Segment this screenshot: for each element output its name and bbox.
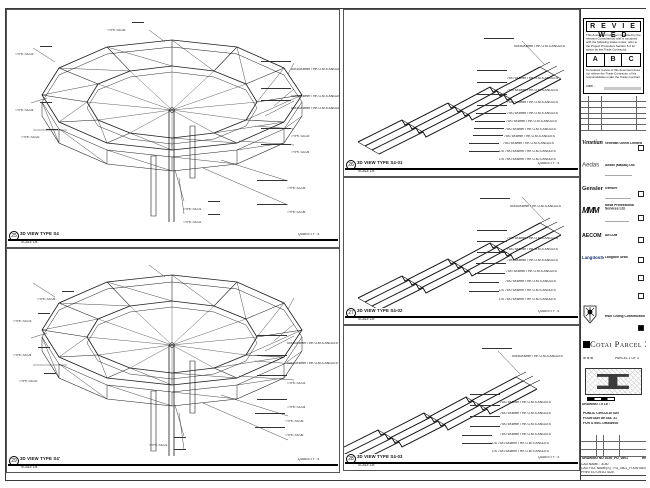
callout-label: 75X75X6mm THK G.M.S ANGLES	[507, 68, 509, 72]
callout-label: TYPE S4-06	[285, 425, 287, 429]
consultant-row-venetian: Venetian Venetian Orient Limited	[581, 131, 646, 154]
highlighted-parcel-shape	[597, 374, 629, 390]
consultant-row-aecom: AECOM AECOM	[581, 223, 646, 246]
drawing-sheet: TYPE S4-03TYPE S4-05TYPE S4-04TYPE S4-02…	[5, 8, 646, 481]
review-checkbox	[638, 293, 644, 299]
view-number-bubble: 26	[346, 160, 356, 170]
revision-table-row: NO. DATE DESCRIPTION BY	[581, 96, 646, 132]
callout-label: 75X75X6mm THK G.M.S ANGLES	[500, 403, 502, 407]
cad-line: CAD FILE NAME(S) : PD_0501_FOUNTAIN_31.D…	[581, 467, 617, 469]
address-placeholder	[605, 221, 629, 222]
view-scale: SCALE 1/8	[21, 241, 37, 244]
title-underline	[345, 316, 578, 318]
callout-label: TYPE S4-01	[183, 199, 208, 203]
status-option-b: B	[605, 54, 623, 66]
view-scale: SCALE 1/8	[21, 466, 37, 469]
callout-label: 75X75X6mm THK G.M.S ANGLES	[506, 261, 508, 265]
panel-3d-view-s4-02: 50X50X6mm THK G.M.S ANGLES75X75X6mm THK …	[343, 177, 580, 325]
cad-line: PRINTED ON A1 SIZE	[581, 471, 617, 473]
banner-ornament-icon	[583, 341, 590, 348]
drawing-title-line: FOUNTAIN DETAIL 31	[583, 417, 617, 420]
callout-label: 75X75X6mm THK G.M.S ANGLES	[500, 424, 502, 428]
keyplan-note: PARCEL 1 OF 3	[615, 357, 639, 360]
reviewed-paragraph-2: Consultant review of this document does …	[586, 69, 641, 76]
panel-3d-view-s4-alt: TYPE S4-05TYPE S4-03TYPE S4-04TYPE S4-02…	[6, 248, 340, 473]
drawing-meta-table: DESIGNED - DWG 2342 DRAWN - DATE 14/04/2…	[581, 435, 646, 457]
callout-label: 50X50X6mm THK G.M.S ANGLES	[291, 59, 293, 63]
contractor-row: Hsin Chong Construction (Macau) Co. Ltd.	[581, 301, 646, 334]
date-fill-line	[604, 87, 641, 90]
keyplan-row	[581, 365, 646, 404]
aecom-logo: AECOM	[582, 233, 602, 238]
callout-label: TYPE S4-03	[15, 44, 40, 48]
revision-table: NO. DATE DESCRIPTION BY	[581, 96, 646, 131]
view-title-bar: 27 3D VIEW TYPE S4-02 QUANTITY : 4 SCALE…	[344, 308, 579, 324]
callout-label: 50X50X6mm THK G.M.S ANGLES	[512, 346, 514, 350]
view-scale: SCALE 1/8	[358, 318, 374, 321]
callout-label: L/S 75X75X6mm THK G.M.S ANGLES	[499, 141, 501, 145]
date-label: Date :	[586, 85, 595, 88]
callout-label: TYPE S4-02	[183, 212, 208, 216]
callout-label: TYPE S4-03	[13, 311, 38, 315]
callout-label: L/S 75X75X6mm THK G.M.S ANGLES	[492, 441, 494, 445]
reviewed-stamp-row: R E V I E W E D This document has been r…	[581, 16, 646, 97]
view-quantity: QUANTITY : 4	[538, 456, 559, 459]
reviewed-title: R E V I E W E D	[586, 21, 641, 32]
consultant-name: Langdon Seah	[605, 256, 628, 259]
drawing-title-line: PUBLIC CIRCULATION	[583, 412, 617, 415]
callout-label: 50X50X6mm THK G.M.S ANGLES	[510, 196, 512, 200]
callout-label: TYPE S4-04	[15, 100, 40, 104]
view-title: 3D VIEW TYPE S4	[20, 232, 59, 236]
callout-label: 75X75X6mm THK G.M.S ANGLES	[503, 133, 505, 137]
status-option-c: C	[622, 54, 640, 66]
view-title: 3D VIEW TYPE S4-03	[357, 455, 403, 459]
review-checkbox-checked	[638, 325, 644, 331]
callout-label: TYPE S4-04	[287, 397, 289, 401]
view-quantity: QUANTITY : 4	[298, 458, 319, 461]
empty-consultant-row	[581, 283, 646, 302]
aedas-logo: Aedas	[582, 161, 599, 168]
reviewed-paragraph-1: This document has been reviewed by the r…	[586, 34, 641, 43]
dome-wireframe-drawing	[7, 10, 339, 231]
callout-label: 50X50X6mm THK G.M.S ANGLES	[287, 333, 289, 337]
project-banner-row: Cotai Parcel 3	[581, 333, 646, 356]
drawing-sheet-page: { "panels": [ { "view_no": "25", "title"…	[0, 0, 650, 488]
callout-label: TYPE S4-04	[291, 142, 293, 146]
panel-3d-view-s4-01: 50X50X6mm THK G.M.S ANGLES75X75X6mm THK …	[343, 9, 580, 177]
consultant-name: AECOM	[605, 234, 617, 237]
view-title: 3D VIEW TYPE S4'	[20, 457, 60, 461]
callout-label: TYPE S4-05	[287, 178, 289, 182]
callout-label: 75X75X6mm THK G.M.S ANGLES	[507, 228, 509, 232]
callout-label: TYPE S4-05	[37, 289, 62, 293]
review-checkbox	[638, 145, 644, 151]
consultant-name: Venetian Orient Limited	[605, 142, 642, 145]
callout-label: TYPE S4-02	[19, 371, 44, 375]
status-options: A B C	[586, 53, 641, 67]
symbol-strip: ⊕ ⊕ ⊕	[583, 357, 593, 360]
consultant-row-gensler: Gensler Gensler	[581, 176, 646, 200]
callout-label: 75X75X6mm THK G.M.S ANGLES	[507, 250, 509, 254]
drawing-number: 3150_PD_0501	[605, 457, 628, 460]
consultant-row-meca: MMM Meca Professional Services Ltd.	[581, 199, 646, 224]
view-quantity: QUANTITY : 4	[298, 233, 319, 236]
view-quantity: QUANTITY : 4	[538, 310, 559, 313]
review-checkbox	[638, 215, 644, 221]
view-scale: SCALE 1/8	[358, 464, 374, 467]
dome-wireframe-drawing	[7, 249, 339, 456]
consultant-name: Meca Professional Services Ltd.	[605, 204, 639, 211]
langdon-seah-logo: LangdonSeah	[582, 256, 604, 260]
callout-label: 75X75X6mm THK G.M.S ANGLES	[500, 414, 502, 418]
cad-info-row: CAD NAME : 3150 CAD FILE NAME(S) : PD_05…	[581, 463, 646, 476]
title-underline	[8, 464, 338, 466]
callout-label: 75X75X6mm THK G.M.S ANGLES	[506, 111, 508, 115]
callout-label: 75X75X6mm THK G.M.S ANGLES	[507, 239, 509, 243]
callout-label: 50X50X6mm THK G.M.S ANGLES	[514, 36, 516, 40]
title-underline	[8, 239, 338, 241]
review-checkbox	[638, 191, 644, 197]
callout-label: TYPE S4-03	[291, 126, 293, 130]
venetian-logo: Venetian	[582, 139, 603, 145]
callout-label: TYPE S4-05	[285, 411, 287, 415]
callout-label: TYPE S4-01	[149, 435, 174, 439]
consultant-name: Gensler	[605, 187, 617, 190]
project-title: Cotai Parcel 3	[590, 339, 646, 349]
callout-label: 75X75X6mm THK G.M.S ANGLES	[504, 126, 506, 130]
review-checkbox	[638, 257, 644, 263]
view-title-bar: 25 3D VIEW TYPE S4 QUANTITY : 4 SCALE 1/…	[7, 231, 339, 247]
view-number-bubble: 25	[9, 231, 19, 241]
panel-3d-view-s4: TYPE S4-03TYPE S4-05TYPE S4-04TYPE S4-02…	[6, 9, 340, 248]
callout-label: TYPE S4-03	[287, 373, 289, 377]
gensler-logo: Gensler	[582, 186, 603, 192]
callout-label: L/S 75X75X6mm THK G.M.S ANGLES	[499, 149, 501, 153]
review-checkbox	[638, 237, 644, 243]
drawing-number-label: DRAWING NO :	[582, 457, 606, 460]
view-quantity: QUANTITY : 4	[538, 162, 559, 165]
callout-label: 75X75X6mm THK G.M.S ANGLES	[500, 392, 502, 396]
reviewed-stamp: R E V I E W E D This document has been r…	[583, 18, 644, 94]
view-number-bubble: 29	[9, 456, 19, 466]
callout-label: 75X75X6mm THK G.M.S ANGLES	[507, 103, 509, 107]
drawing-title-row: PUBLIC CIRCULATION FOUNTAIN DETAIL 31 FO…	[581, 411, 646, 436]
callout-label: L/S 75X75X6mm THK G.M.S ANGLES	[492, 433, 494, 437]
triple-m-logo: MMM	[582, 206, 598, 215]
callout-label: 50X50X6mm THK G.M.S ANGLES	[291, 86, 293, 90]
consultant-row-aedas: Aedas Aedas (Macau) Ltd.	[581, 153, 646, 177]
revision-code: REV A	[642, 457, 646, 460]
title-underline	[345, 168, 578, 170]
date-line: Date :	[586, 85, 641, 91]
callout-label: 75X75X6mm THK G.M.S ANGLES	[507, 80, 509, 84]
title-block: DO NOT SCALE DRAWING. USE FIGURED DIMENS…	[580, 9, 646, 480]
key-plan-thumbnail	[585, 368, 642, 395]
consultant-row-langdon-seah: LangdonSeah Langdon Seah	[581, 245, 646, 266]
callout-label: 75X75X6mm THK G.M.S ANGLES	[505, 119, 507, 123]
callout-label: TYPE S4-02	[21, 127, 46, 131]
view-title-bar: 28 3D VIEW TYPE S4-03 QUANTITY : 4 SCALE…	[344, 454, 579, 470]
callout-label: 75X75X6mm THK G.M.S ANGLES	[507, 92, 509, 96]
view-number-bubble: 27	[346, 308, 356, 318]
consultant-name: Aedas (Macau) Ltd.	[605, 164, 635, 167]
callout-label: 75X75X6mm THK G.M.S ANGLES	[505, 271, 507, 275]
callout-label: L/S 75X75X6mm THK G.M.S ANGLES	[499, 280, 501, 284]
contractor-name-line1: Hsin Chong Construction	[605, 315, 645, 318]
cad-line: CAD NAME : 3150	[581, 463, 617, 465]
callout-label: 50X50X6mm THK G.M.S ANGLES	[287, 353, 289, 357]
drawing-title-header: DRAWING TITLE :	[582, 403, 610, 406]
callout-label: TYPE S4-05	[107, 20, 132, 24]
view-title: 3D VIEW TYPE S4-02	[357, 309, 403, 313]
callout-label: 50X50X6mm THK G.M.S ANGLES	[291, 98, 293, 102]
callout-label: L/S 75X75X6mm THK G.M.S ANGLES	[499, 289, 501, 293]
contractor-crest-icon	[582, 305, 598, 325]
callout-label: TYPE S4-06	[287, 202, 289, 206]
drawing-meta-row: DESIGNED - DWG 2342 DRAWN - DATE 14/04/2…	[581, 435, 646, 458]
view-title-bar: 26 3D VIEW TYPE S4-01 QUANTITY : 4 SCALE…	[344, 160, 579, 176]
keyplan-scale-bar	[587, 397, 615, 401]
callout-label: TYPE S4-04	[13, 345, 38, 349]
panel-3d-view-s4-03: 50X50X6mm THK G.M.S ANGLES75X75X6mm THK …	[343, 325, 580, 471]
callout-label: TYPE S4-02	[149, 447, 174, 451]
review-checkbox	[638, 275, 644, 281]
view-title: 3D VIEW TYPE S4-01	[357, 161, 403, 165]
status-option-a: A	[587, 54, 605, 66]
view-number-bubble: 28	[346, 454, 356, 464]
drawing-title-line: FOR STEEL DRAWING	[583, 422, 617, 425]
view-title-bar: 29 3D VIEW TYPE S4' QUANTITY : 4 SCALE 1…	[7, 456, 339, 472]
view-scale: SCALE 1/8	[358, 170, 374, 173]
title-underline	[345, 462, 578, 464]
empty-consultant-row	[581, 265, 646, 284]
